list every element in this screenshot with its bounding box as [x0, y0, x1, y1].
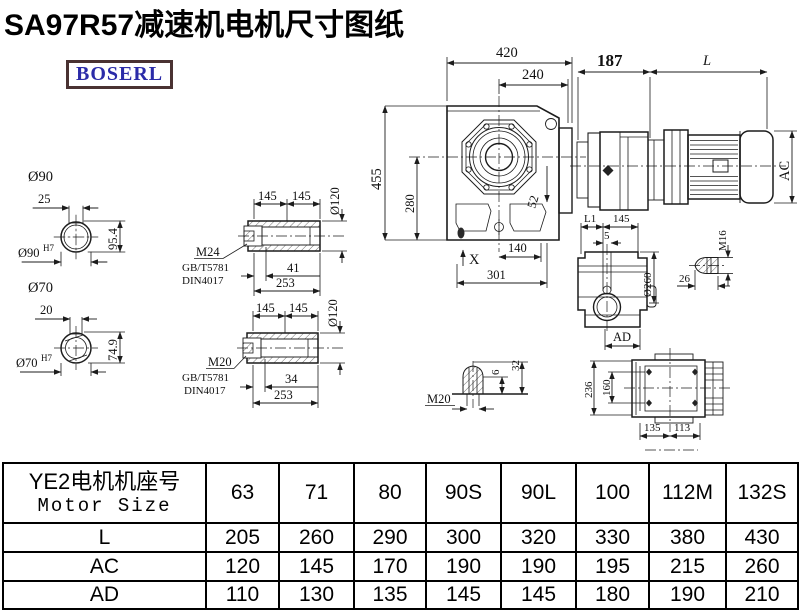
thread-label: M20 [427, 392, 451, 406]
cell: 130 [279, 581, 354, 609]
dim-label: 455 [369, 168, 385, 190]
table-row-AD: AD 110 130 135 145 145 180 190 210 [3, 581, 798, 609]
dim-label: L1 [584, 213, 596, 225]
standard-label: GB/T5781 [182, 372, 229, 384]
cell: 110 [206, 581, 279, 609]
gearbox-front-view: 52 X 140 301 280 455 420 240 [369, 45, 586, 288]
dim-label: X [469, 252, 480, 268]
motor-size-table: YE2电机机座号 Motor Size 63 71 80 90S 90L 100… [2, 462, 799, 610]
col-90l: 90L [501, 463, 576, 523]
col-112m: 112M [649, 463, 726, 523]
dim-label: 236 [583, 381, 595, 398]
dim-label: 253 [276, 276, 295, 290]
dim-label: AC [777, 161, 793, 181]
header-en: Motor Size [4, 495, 205, 518]
gearbox-rear-view: 236 160 135 113 [583, 348, 731, 450]
thread-label: M24 [196, 245, 220, 259]
dim-label: 25 [38, 192, 51, 206]
cell: 135 [354, 581, 426, 609]
dim-label: 160 [601, 379, 613, 396]
dim-label: 95.4 [106, 227, 120, 250]
cell: 205 [206, 523, 279, 552]
col-63: 63 [206, 463, 279, 523]
drawing-page: SA97R57减速机电机尺寸图纸 BOSERL Ø90 25 [0, 0, 800, 613]
dim-label: Ø90 [28, 169, 53, 185]
cell: 380 [649, 523, 726, 552]
dim-label: Ø90 [18, 246, 40, 260]
cell: 260 [726, 552, 798, 581]
row-label-L: L [3, 523, 206, 552]
cell: 320 [501, 523, 576, 552]
shaft-section-70-view: Ø70 20 74.9 Ø70 H7 [16, 280, 125, 376]
col-100: 100 [576, 463, 649, 523]
dim-label: 145 [613, 213, 630, 225]
technical-drawing: Ø90 25 95.4 Ø90 H7 Ø70 [0, 0, 800, 462]
row-label-AC: AC [3, 552, 206, 581]
dim-label: 5 [604, 230, 610, 242]
dim-label: L [702, 53, 711, 69]
dim-label: Ø120 [328, 187, 342, 215]
dim-label: 280 [403, 194, 417, 213]
cell: 120 [206, 552, 279, 581]
dim-label: 52 [524, 194, 541, 210]
dim-label: 74.9 [106, 339, 120, 361]
dim-label: 41 [287, 261, 300, 275]
table-row-AC: AC 120 145 170 190 190 195 215 260 [3, 552, 798, 581]
dim-label: Ø260 [642, 272, 654, 297]
cell: 190 [426, 552, 501, 581]
cell: 170 [354, 552, 426, 581]
dim-label: 34 [285, 372, 298, 386]
cell: 290 [354, 523, 426, 552]
dim-label: Ø70 [16, 356, 38, 370]
cell: 145 [279, 552, 354, 581]
table-row-L: L 205 260 290 300 320 330 380 430 [3, 523, 798, 552]
dim-label: Ø120 [326, 299, 340, 327]
col-80: 80 [354, 463, 426, 523]
dim-label: 26 [679, 273, 691, 285]
cell: 330 [576, 523, 649, 552]
shaft-section-90-view: Ø90 25 95.4 Ø90 H7 [18, 169, 125, 266]
bolt-m16-detail: M16 26 [677, 230, 733, 290]
cell: 190 [501, 552, 576, 581]
thread-label: M16 [717, 230, 729, 251]
col-90s: 90S [426, 463, 501, 523]
col-132s: 132S [726, 463, 798, 523]
dim-label: Ø70 [28, 280, 53, 296]
cell: 145 [501, 581, 576, 609]
cell: 260 [279, 523, 354, 552]
header-cn: YE2电机机座号 [4, 468, 205, 496]
dim-label: 135 [644, 422, 661, 434]
dim-label: AD [613, 330, 631, 344]
table-header-row: YE2电机机座号 Motor Size 63 71 80 90S 90L 100… [3, 463, 798, 523]
cell: 210 [726, 581, 798, 609]
dim-label: 145 [292, 189, 311, 203]
bolt-m20-detail: M20 6 32 [425, 360, 528, 409]
cell: 430 [726, 523, 798, 552]
standard-label: GB/T5781 [182, 262, 229, 274]
dim-label: 113 [674, 422, 691, 434]
dim-label: 145 [258, 189, 277, 203]
dim-label-sup: H7 [41, 353, 52, 363]
cell: 195 [576, 552, 649, 581]
dim-label: 301 [487, 268, 506, 282]
standard-label: DIN4017 [182, 275, 224, 287]
dim-label: 6 [490, 369, 502, 375]
dim-label: 240 [522, 67, 544, 83]
col-71: 71 [279, 463, 354, 523]
dim-label: 140 [508, 241, 527, 255]
dim-label: 187 [597, 51, 623, 70]
header-motor-size: YE2电机机座号 Motor Size [3, 463, 206, 523]
dim-label-sup: H7 [43, 243, 54, 253]
sleeve-m20-view: 145 145 Ø120 M20 GB/T5781 DIN4017 34 253 [182, 299, 345, 408]
row-label-AD: AD [3, 581, 206, 609]
dim-label: 253 [274, 388, 293, 402]
motor-side-view: 187 L AC [570, 51, 797, 210]
cell: 300 [426, 523, 501, 552]
dim-label: 145 [256, 301, 275, 315]
dim-label: 32 [510, 360, 522, 371]
standard-label: DIN4017 [184, 385, 226, 397]
cell: 180 [576, 581, 649, 609]
dim-label: 145 [289, 301, 308, 315]
cell: 190 [649, 581, 726, 609]
dim-label: 420 [496, 45, 518, 61]
sleeve-m24-view: 145 145 Ø120 M24 GB/T5781 DIN4017 41 253 [182, 187, 347, 296]
cell: 215 [649, 552, 726, 581]
cell: 145 [426, 581, 501, 609]
gearbox-side-view: L1 145 5 Ø260 AD [578, 213, 659, 350]
thread-label: M20 [208, 355, 232, 369]
dim-label: 20 [40, 303, 53, 317]
